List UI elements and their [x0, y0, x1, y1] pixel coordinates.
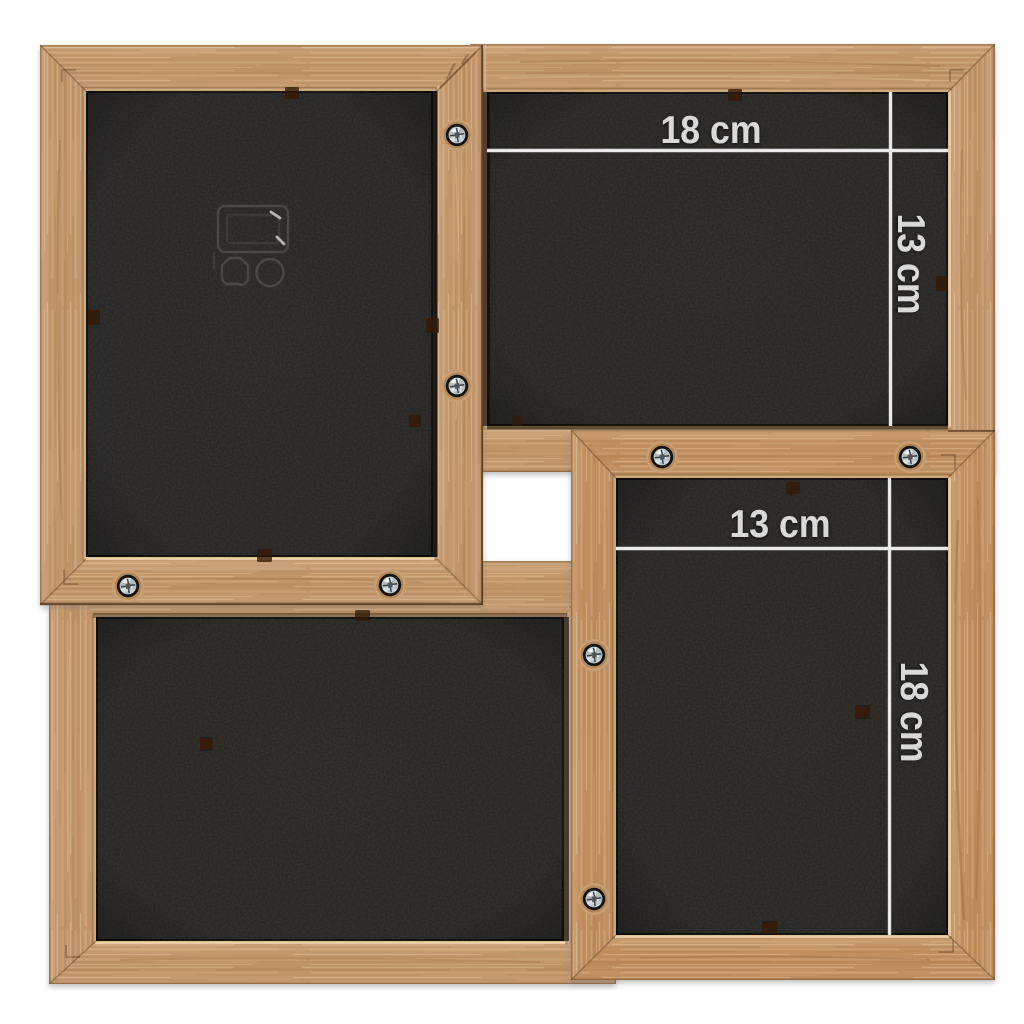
svg-text:18 cm: 18 cm	[661, 109, 762, 152]
svg-text:18 cm: 18 cm	[892, 662, 935, 763]
svg-text:13 cm: 13 cm	[889, 214, 932, 315]
svg-text:13 cm: 13 cm	[730, 503, 831, 546]
